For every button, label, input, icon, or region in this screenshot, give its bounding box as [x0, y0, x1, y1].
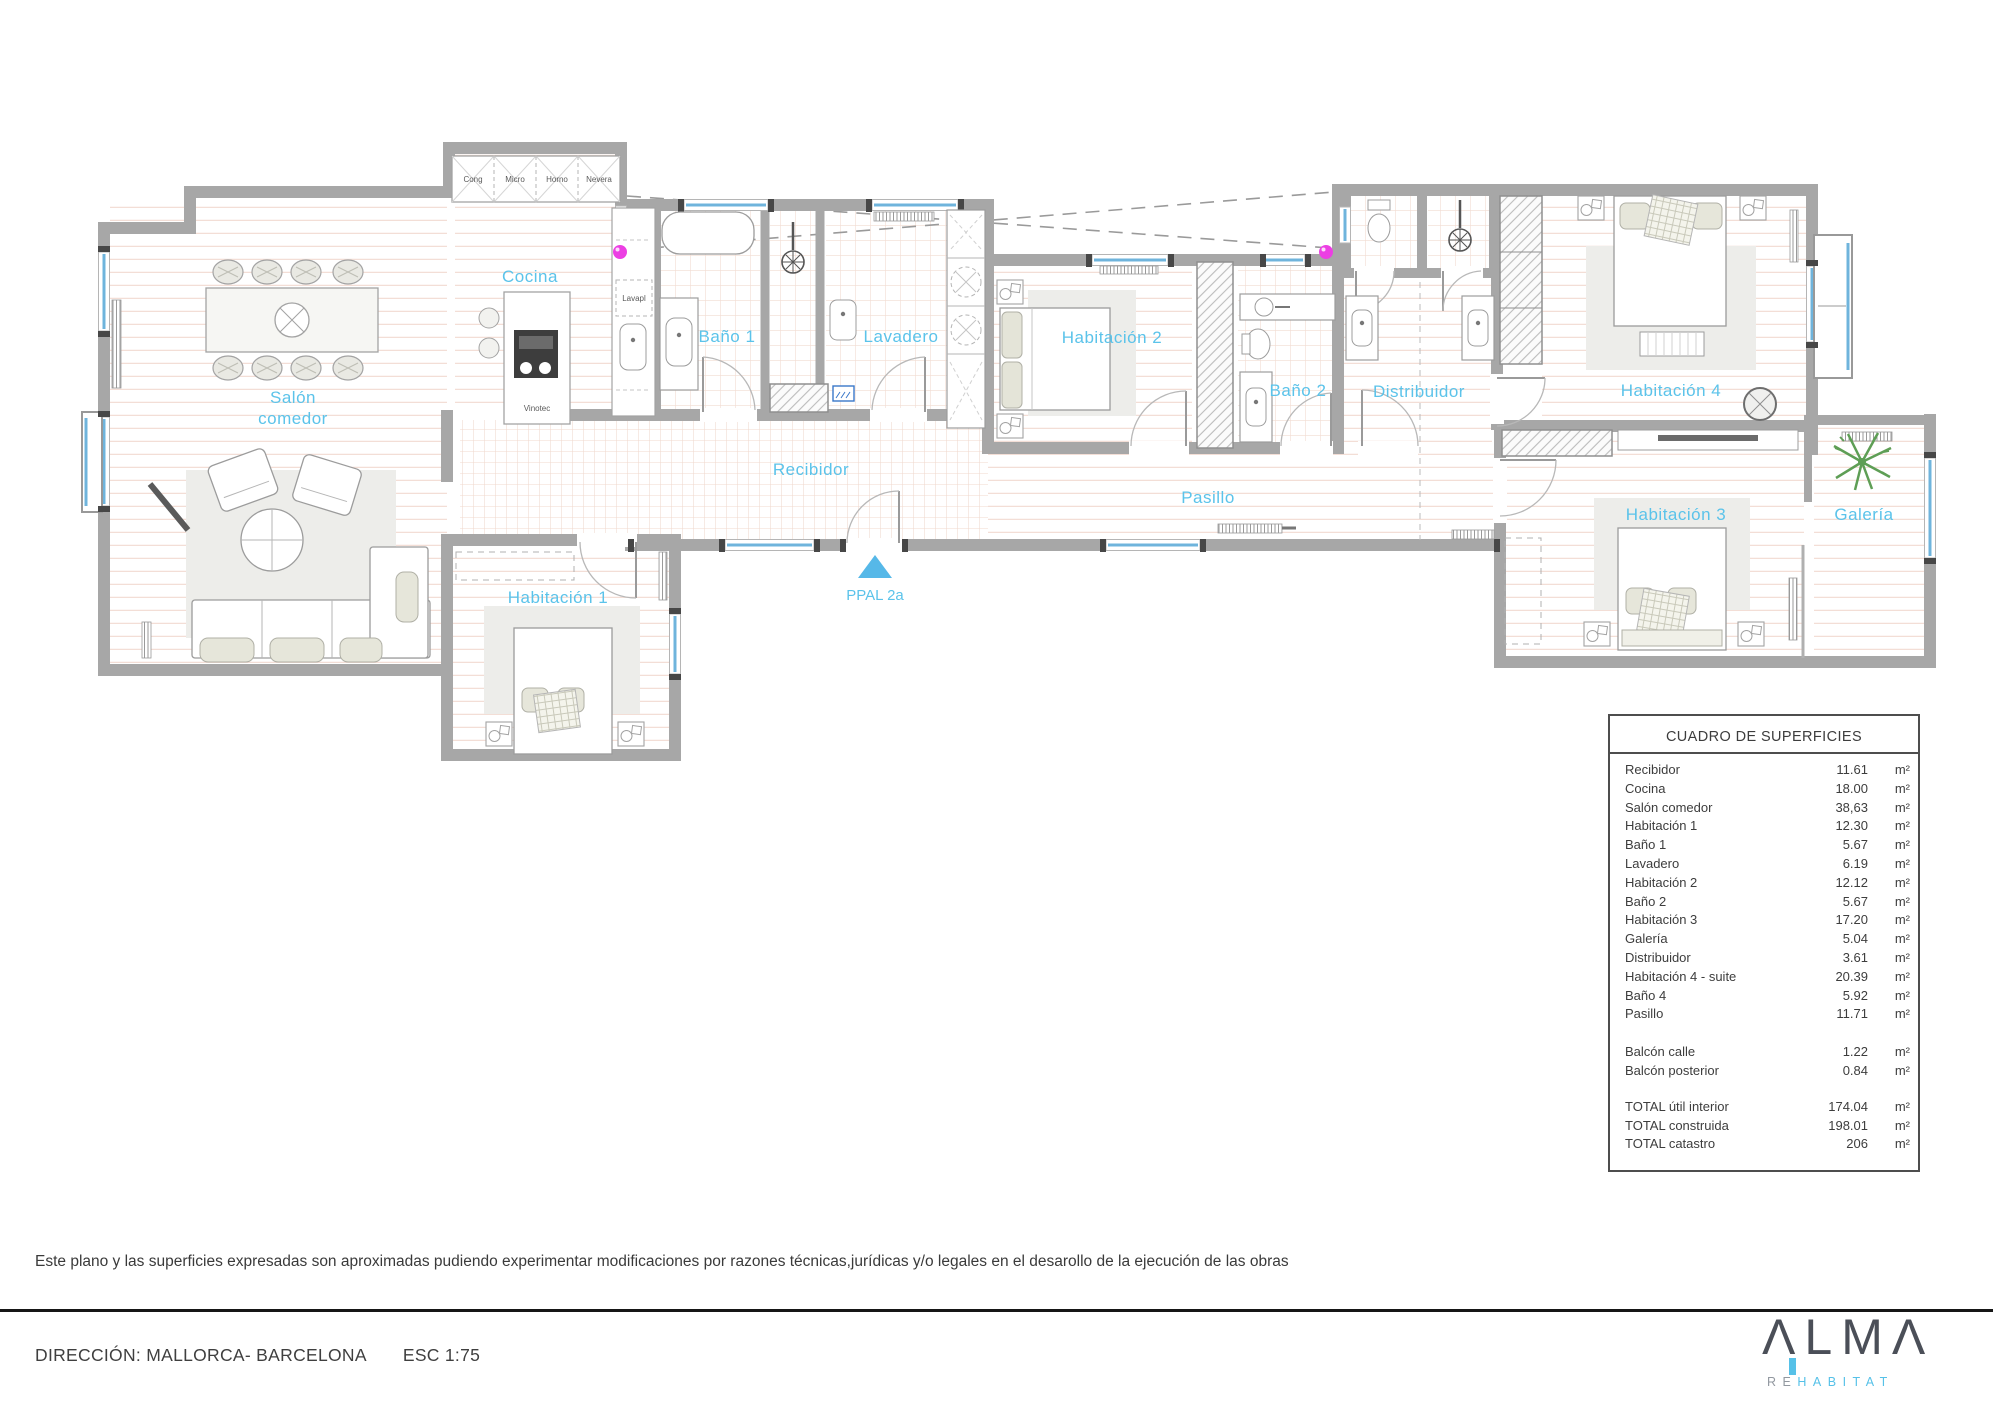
entrance-label: PPAL 2a: [846, 587, 904, 604]
room-label-salon-2: comedor: [258, 409, 328, 428]
room-label-lavadero: Lavadero: [864, 327, 939, 346]
kitchen-sink: [620, 324, 646, 370]
room-label-bano2: Baño 2: [1270, 381, 1327, 400]
surface-table-body: Recibidor11.61m²Cocina18.00m²Salón comed…: [1610, 754, 1918, 1154]
laundry-column: [947, 210, 985, 428]
scale-text: ESC 1:75: [403, 1345, 480, 1365]
surface-row-label: Habitación 1: [1625, 817, 1794, 836]
surface-row-label: Salón comedor: [1625, 799, 1794, 818]
surface-row-label: Baño 2: [1625, 893, 1794, 912]
surface-row-unit: m²: [1868, 893, 1910, 912]
surface-row-label: Baño 4: [1625, 987, 1794, 1006]
surface-row-label: Galería: [1625, 930, 1794, 949]
surface-row: Galería5.04m²: [1625, 930, 1910, 949]
surface-row-unit: m²: [1868, 968, 1910, 987]
surface-row-value: 18.00: [1794, 780, 1868, 799]
balcon-posterior: [82, 412, 102, 512]
surface-row: Baño 15.67m²: [1625, 836, 1910, 855]
radiator: [1452, 530, 1494, 539]
room-label-bano1: Baño 1: [699, 327, 756, 346]
surface-row-unit: m²: [1868, 949, 1910, 968]
surface-row: Lavadero6.19m²: [1625, 855, 1910, 874]
toilet-icon: [1368, 200, 1390, 210]
surface-row-unit: m²: [1868, 836, 1910, 855]
wardrobe: [1500, 196, 1542, 364]
disclaimer-text: Este plano y las superficies expresadas …: [35, 1253, 1289, 1271]
floor-plan: PPAL 2a Salón comedor Cocina Baño 1 Lava…: [0, 0, 1993, 810]
spacer: [1625, 1024, 1910, 1043]
room-label-habitacion2: Habitación 2: [1062, 328, 1163, 347]
alma-wordmark: ΛLMΛ: [1762, 1312, 1977, 1362]
surface-row-label: Habitación 2: [1625, 874, 1794, 893]
appliance-label-lavapl: Lavapl: [622, 294, 646, 303]
room-label-habitacion3: Habitación 3: [1626, 505, 1727, 524]
room-label-habitacion4: Habitación 4: [1621, 381, 1722, 400]
closet: [770, 384, 828, 412]
surface-row: Baño 25.67m²: [1625, 893, 1910, 912]
surface-row: TOTAL catastro206m²: [1625, 1135, 1910, 1154]
bathtub: [662, 212, 754, 254]
radiator: [1790, 210, 1798, 262]
room-recibidor-floor: [460, 420, 988, 541]
address-text: DIRECCIÓN: MALLORCA- BARCELONA: [35, 1345, 367, 1365]
surface-row: Habitación 112.30m²: [1625, 817, 1910, 836]
balcon-calle: [1814, 235, 1852, 378]
radiator: [1218, 524, 1282, 533]
surface-row-value: 0.84: [1794, 1062, 1868, 1081]
surface-row-value: 5.67: [1794, 836, 1868, 855]
appliance-label-micro: Micro: [505, 175, 525, 184]
radiator: [112, 300, 121, 388]
surface-row-value: 174.04: [1794, 1098, 1868, 1117]
room-galeria-floor: [1814, 426, 1926, 658]
appliance-label-nevera: Nevera: [586, 175, 612, 184]
surface-row-unit: m²: [1868, 1135, 1910, 1154]
surface-row: Habitación 212.12m²: [1625, 874, 1910, 893]
surface-row-label: TOTAL útil interior: [1625, 1098, 1794, 1117]
stool: [479, 338, 499, 358]
surface-row-label: TOTAL construida: [1625, 1117, 1794, 1136]
surface-row-label: TOTAL catastro: [1625, 1135, 1794, 1154]
surface-row-label: Balcón posterior: [1625, 1062, 1794, 1081]
surface-row-value: 12.12: [1794, 874, 1868, 893]
room-label-cocina: Cocina: [502, 267, 558, 286]
surface-row: Balcón posterior0.84m²: [1625, 1062, 1910, 1081]
logo-sub-habitat: HABITAT: [1797, 1375, 1893, 1389]
surface-row: Distribuidor3.61m²: [1625, 949, 1910, 968]
surface-row: TOTAL construida198.01m²: [1625, 1117, 1910, 1136]
surface-table-total-rows: TOTAL útil interior174.04m²TOTAL constru…: [1625, 1098, 1910, 1154]
appliance-label-horno: Horno: [546, 175, 568, 184]
surface-row-label: Baño 1: [1625, 836, 1794, 855]
entrance-marker: PPAL 2a: [846, 555, 904, 604]
surface-row-unit: m²: [1868, 911, 1910, 930]
tv-icon: [1658, 435, 1758, 441]
surface-row: Cocina18.00m²: [1625, 780, 1910, 799]
radiator: [659, 552, 667, 600]
closet: [1502, 430, 1612, 456]
surface-row-value: 5.04: [1794, 930, 1868, 949]
room-label-recibidor: Recibidor: [773, 460, 849, 479]
surface-row-unit: m²: [1868, 874, 1910, 893]
surface-row-unit: m²: [1868, 855, 1910, 874]
alma-logo-subtitle: REHABITAT: [1762, 1375, 1977, 1389]
logo-sub-re: RE: [1767, 1375, 1797, 1389]
surface-row-label: Recibidor: [1625, 761, 1794, 780]
surface-row: Balcón calle1.22m²: [1625, 1043, 1910, 1062]
surface-row-unit: m²: [1868, 1098, 1910, 1117]
surface-table: CUADRO DE SUPERFICIES Recibidor11.61m²Co…: [1608, 714, 1920, 1172]
room-label-galeria: Galería: [1834, 505, 1893, 524]
surface-row-label: Pasillo: [1625, 1005, 1794, 1024]
surface-row-unit: m²: [1868, 799, 1910, 818]
surface-row: Habitación 4 - suite20.39m²: [1625, 968, 1910, 987]
surface-row-unit: m²: [1868, 761, 1910, 780]
radiator: [142, 622, 151, 658]
surface-row-value: 5.67: [1794, 893, 1868, 912]
surface-row-value: 6.19: [1794, 855, 1868, 874]
laundry-sink: [830, 300, 856, 340]
surface-row-unit: m²: [1868, 1117, 1910, 1136]
radiator: [1100, 266, 1158, 274]
surface-row-unit: m²: [1868, 930, 1910, 949]
surface-row-unit: m²: [1868, 817, 1910, 836]
alma-logo: ΛLMΛ REHABITAT: [1762, 1312, 1977, 1389]
floorplan-sheet: PPAL 2a Salón comedor Cocina Baño 1 Lava…: [0, 0, 1993, 1407]
alma-wordmark-text: ΛLMΛ: [1762, 1309, 1934, 1365]
surface-row-unit: m²: [1868, 1043, 1910, 1062]
surface-row-value: 11.61: [1794, 761, 1868, 780]
shower-enclosure: [1197, 262, 1233, 448]
surface-row: Recibidor11.61m²: [1625, 761, 1910, 780]
room-label-salon-1: Salón: [270, 388, 316, 407]
surface-row-unit: m²: [1868, 987, 1910, 1006]
surface-row-label: Habitación 4 - suite: [1625, 968, 1794, 987]
surface-row: Habitación 317.20m²: [1625, 911, 1910, 930]
room-label-pasillo: Pasillo: [1181, 488, 1235, 507]
surface-row-value: 198.01: [1794, 1117, 1868, 1136]
surface-row: Pasillo11.71m²: [1625, 1005, 1910, 1024]
surface-row-value: 38,63: [1794, 799, 1868, 818]
surface-row-value: 1.22: [1794, 1043, 1868, 1062]
surface-row-unit: m²: [1868, 780, 1910, 799]
appliance-label-cong: Cong: [463, 175, 482, 184]
footer-divider: [0, 1309, 1993, 1312]
kitchen-counter: [612, 208, 655, 416]
entrance-triangle-icon: [858, 555, 892, 578]
surface-row-label: Lavadero: [1625, 855, 1794, 874]
radiator: [1789, 578, 1797, 640]
radiator: [874, 212, 934, 221]
surface-table-balcony-rows: Balcón calle1.22m²Balcón posterior0.84m²: [1625, 1043, 1910, 1081]
surface-row-label: Distribuidor: [1625, 949, 1794, 968]
surface-row-unit: m²: [1868, 1062, 1910, 1081]
surface-row-value: 3.61: [1794, 949, 1868, 968]
surface-row-label: Cocina: [1625, 780, 1794, 799]
surface-row: Salón comedor38,63m²: [1625, 799, 1910, 818]
spacer: [1625, 1081, 1910, 1098]
surface-row-value: 11.71: [1794, 1005, 1868, 1024]
address-bar: DIRECCIÓN: MALLORCA- BARCELONAESC 1:75: [35, 1345, 480, 1366]
room-label-distribuidor: Distribuidor: [1373, 382, 1465, 401]
surface-table-main-rows: Recibidor11.61m²Cocina18.00m²Salón comed…: [1625, 761, 1910, 1024]
surface-row-value: 206: [1794, 1135, 1868, 1154]
appliance-label-vinotec: Vinotec: [524, 404, 551, 413]
surface-row-label: Habitación 3: [1625, 911, 1794, 930]
room-label-habitacion1: Habitación 1: [508, 588, 609, 607]
alma-logo-blue-tick: [1789, 1358, 1796, 1375]
surface-row: Baño 45.92m²: [1625, 987, 1910, 1006]
surface-row-value: 20.39: [1794, 968, 1868, 987]
surface-row: TOTAL útil interior174.04m²: [1625, 1098, 1910, 1117]
surface-table-title: CUADRO DE SUPERFICIES: [1610, 716, 1918, 745]
surface-row-value: 17.20: [1794, 911, 1868, 930]
stool: [479, 308, 499, 328]
surface-row-unit: m²: [1868, 1005, 1910, 1024]
surface-row-value: 5.92: [1794, 987, 1868, 1006]
surface-row-label: Balcón calle: [1625, 1043, 1794, 1062]
surface-row-value: 12.30: [1794, 817, 1868, 836]
